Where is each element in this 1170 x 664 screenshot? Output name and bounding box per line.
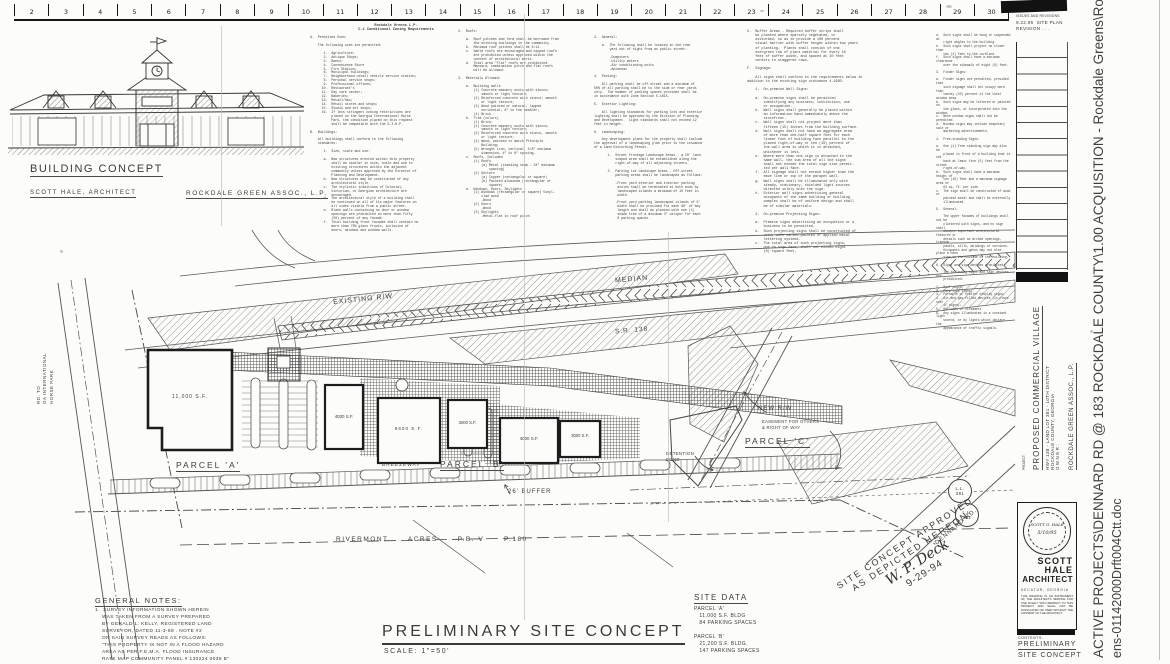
ruler-number: 18 <box>563 4 597 16</box>
ruler-number: 15 <box>460 4 494 16</box>
zoning-col4: 5. Buffer Areas - Required buffer strips… <box>747 30 931 254</box>
label-bldg4: 3000 S.F. <box>448 420 487 425</box>
ruler-number: 27 <box>871 4 905 16</box>
ruler-number: 29 <box>940 4 974 16</box>
architect-seal: SCOTT G. HALE 5/10/95 <box>1023 507 1071 555</box>
site-data-title: SITE DATA <box>694 593 748 604</box>
contents-label: CONTENTS: <box>1018 636 1043 640</box>
sheet-title: PRELIMINARY SITE CONCEPT <box>382 623 685 645</box>
sketch-tower <box>128 37 186 146</box>
seal-name: SCOTT G. HALE <box>1024 522 1070 527</box>
general-notes-body: 1. SURVEY INFORMATION SHOWN HEREIN WAS T… <box>95 608 229 664</box>
label-bldg6: 3000 S.F. <box>560 433 600 438</box>
rw-hatch-band-3 <box>890 360 1015 416</box>
owner-name: ROCKDALE GREEN ASSOC., L.P. <box>1069 363 1077 470</box>
ruler-number: 14 <box>425 4 459 16</box>
scan-crease-3 <box>668 232 669 522</box>
general-notes-title: GENERAL NOTES: <box>95 596 182 607</box>
label-detention-pond: DETENTION POND <box>666 451 694 463</box>
sketch-title: BUILDING CONCEPT <box>30 163 163 177</box>
watermark-filepath-line1: ACTIVE PROJECTS\DENNARD RD @ 183 ROCKDAL… <box>1091 38 1106 658</box>
label-easement: EASEMENT FOR OTHERS & RIGHT OF WAY <box>762 419 819 431</box>
building-3000sf-2 <box>560 421 600 457</box>
scan-crease-2 <box>524 14 525 620</box>
watermark-filepath-line2: ens-01142000Drft004Ctt.doc <box>1110 458 1124 658</box>
sketch-owner: ROCKDALE GREEN ASSOC., L.P. <box>186 190 328 199</box>
ruler-number: 21 <box>665 4 699 16</box>
ruler-number: 26 <box>837 4 871 16</box>
parking-court-a <box>242 378 318 450</box>
issues-header: ISSUES AND REVISIONS <box>1016 14 1070 18</box>
architect-stamp-box: SCOTT G. HALE 5/10/95 SCOTT HALE ARCHITE… <box>1017 502 1077 630</box>
ruler-number: 28 <box>905 4 939 16</box>
contents-bar <box>1017 630 1075 635</box>
ruler-number: 4 <box>83 4 117 16</box>
contents-line2: SITE CONCEPT <box>1018 652 1082 659</box>
label-new-rw: NEW R/W <box>758 406 792 412</box>
scan-speck <box>1090 330 1093 333</box>
ruler-number: 3 <box>48 4 82 16</box>
scan-crease-1 <box>221 26 222 226</box>
revision-entry: 9.22.95 SITE PLAN REVISION . . . <box>1016 20 1070 33</box>
titleblock-divider-bar <box>1016 272 1068 282</box>
scan-speck <box>760 10 764 12</box>
ruler-number: 2 <box>14 4 48 16</box>
sheet-scale: SCALE: 1"=50' <box>384 648 450 655</box>
firm-line3: ARCHITECT <box>1022 576 1073 584</box>
label-bldg1: 11,000 S.F. <box>160 394 220 400</box>
label-rivermont: RIVERMONT ACRES P.B. V P.180 <box>336 536 528 543</box>
ruler-number: 11 <box>323 4 357 16</box>
label-parcel-a: PARCEL 'A' <box>176 460 240 472</box>
contents-line1: PRELIMINARY <box>1018 641 1076 650</box>
project-label: PROJECT: <box>1022 292 1026 470</box>
label-parcel-c: PARCEL 'C' <box>745 436 810 448</box>
label-parcel-b: PARCEL 'B' <box>440 459 504 471</box>
ruler-number: 7 <box>185 4 219 16</box>
ruler-number: 19 <box>597 4 631 16</box>
titleblock-top-bar <box>1001 0 1067 13</box>
copier-ruler: 2345678910111213141516171819202122232425… <box>14 4 1009 21</box>
ruler-number: 9 <box>254 4 288 16</box>
revision-lines <box>1016 42 1068 270</box>
ruler-number: 12 <box>357 4 391 16</box>
sketch-architect: SCOTT HALE, ARCHITECT <box>30 190 136 198</box>
label-bldg3: 8600 S.F. <box>388 426 430 431</box>
zoning-col1: A. Permitted Uses: The following uses ar… <box>310 37 456 234</box>
label-bldg2: 4000 S.F. <box>326 414 362 419</box>
scanned-site-plan-sheet: { "ruler": { "numbers": ["2","3","4","5"… <box>0 0 1170 660</box>
ruler-number: 6 <box>151 4 185 16</box>
label-road-left: RD. TO GA INTERNATIONAL HORSE PARK <box>36 292 55 404</box>
ruler-number: 17 <box>528 4 562 16</box>
ruler-number: 24 <box>768 4 802 16</box>
sketch-elevation <box>8 37 304 155</box>
label-breezeway: BREEZEWAY <box>382 463 421 468</box>
zoning-header: Rockdale Greens L.P. C-1 Conditional Zon… <box>326 24 466 33</box>
scan-speck <box>60 250 63 253</box>
label-buffer: 26' BUFFER <box>508 489 552 495</box>
building-11000sf <box>148 350 232 450</box>
seal-date: 5/10/95 <box>1024 530 1070 536</box>
ruler-number: 20 <box>631 4 665 16</box>
scan-speck <box>946 5 952 8</box>
ruler-number: 10 <box>288 4 322 16</box>
ruler-number: 13 <box>391 4 425 16</box>
project-name: PROPOSED COMMERCIAL VILLAGE <box>1032 306 1043 470</box>
firm-city: DECATUR, GEORGIA <box>1021 588 1073 592</box>
ruler-number: 22 <box>700 4 734 16</box>
owner-label: OWNER: <box>1055 292 1060 470</box>
ruler-number: 8 <box>220 4 254 16</box>
building-concept-sketch <box>8 34 308 166</box>
sheet-right-border <box>1159 0 1160 660</box>
stamp-disclaimer: THIS DRAWING IS AN INSTRUMENT OF THE ARC… <box>1021 595 1073 616</box>
project-block: PROJECT: PROPOSED COMMERCIAL VILLAGE HWY… <box>1022 292 1072 470</box>
label-bldg5: 4000 S.F. <box>508 436 550 441</box>
ruler-number: 25 <box>802 4 836 16</box>
zoning-col3: 3. General: a. The following shall be lo… <box>594 37 742 222</box>
site-data-body: PARCEL 'A' 11,000 S.F. BLDG 84 PARKING S… <box>694 606 760 655</box>
plaza-tree <box>396 379 408 391</box>
ruler-number: 5 <box>117 4 151 16</box>
